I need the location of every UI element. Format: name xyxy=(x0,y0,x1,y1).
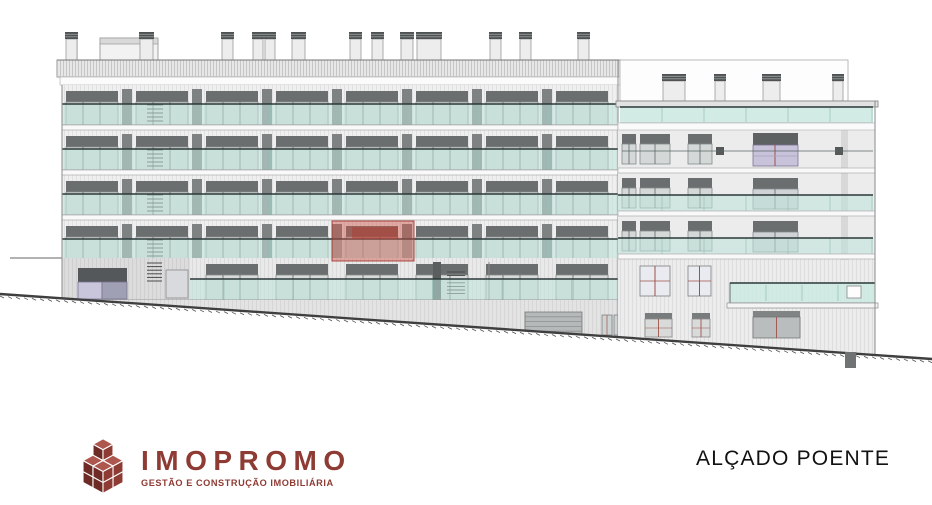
left-building-section xyxy=(57,32,624,342)
company-logo: IMOPROMO GESTÃO E CONSTRUÇÃO IMOBILIÁRIA xyxy=(76,437,352,497)
drawing-sheet: IMOPROMO GESTÃO E CONSTRUÇÃO IMOBILIÁRIA… xyxy=(0,0,932,505)
logo-name: IMOPROMO xyxy=(141,446,352,475)
right-building-section xyxy=(616,60,878,357)
elevation-drawing xyxy=(0,0,932,505)
logo-cubes-icon xyxy=(76,437,130,497)
logo-tagline: GESTÃO E CONSTRUÇÃO IMOBILIÁRIA xyxy=(141,478,352,488)
drawing-title: ALÇADO POENTE xyxy=(696,447,890,471)
highlighted-unit-overlay[interactable] xyxy=(332,221,414,261)
highlighted-unit[interactable] xyxy=(332,221,414,261)
logo-text: IMOPROMO GESTÃO E CONSTRUÇÃO IMOBILIÁRIA xyxy=(141,446,352,488)
